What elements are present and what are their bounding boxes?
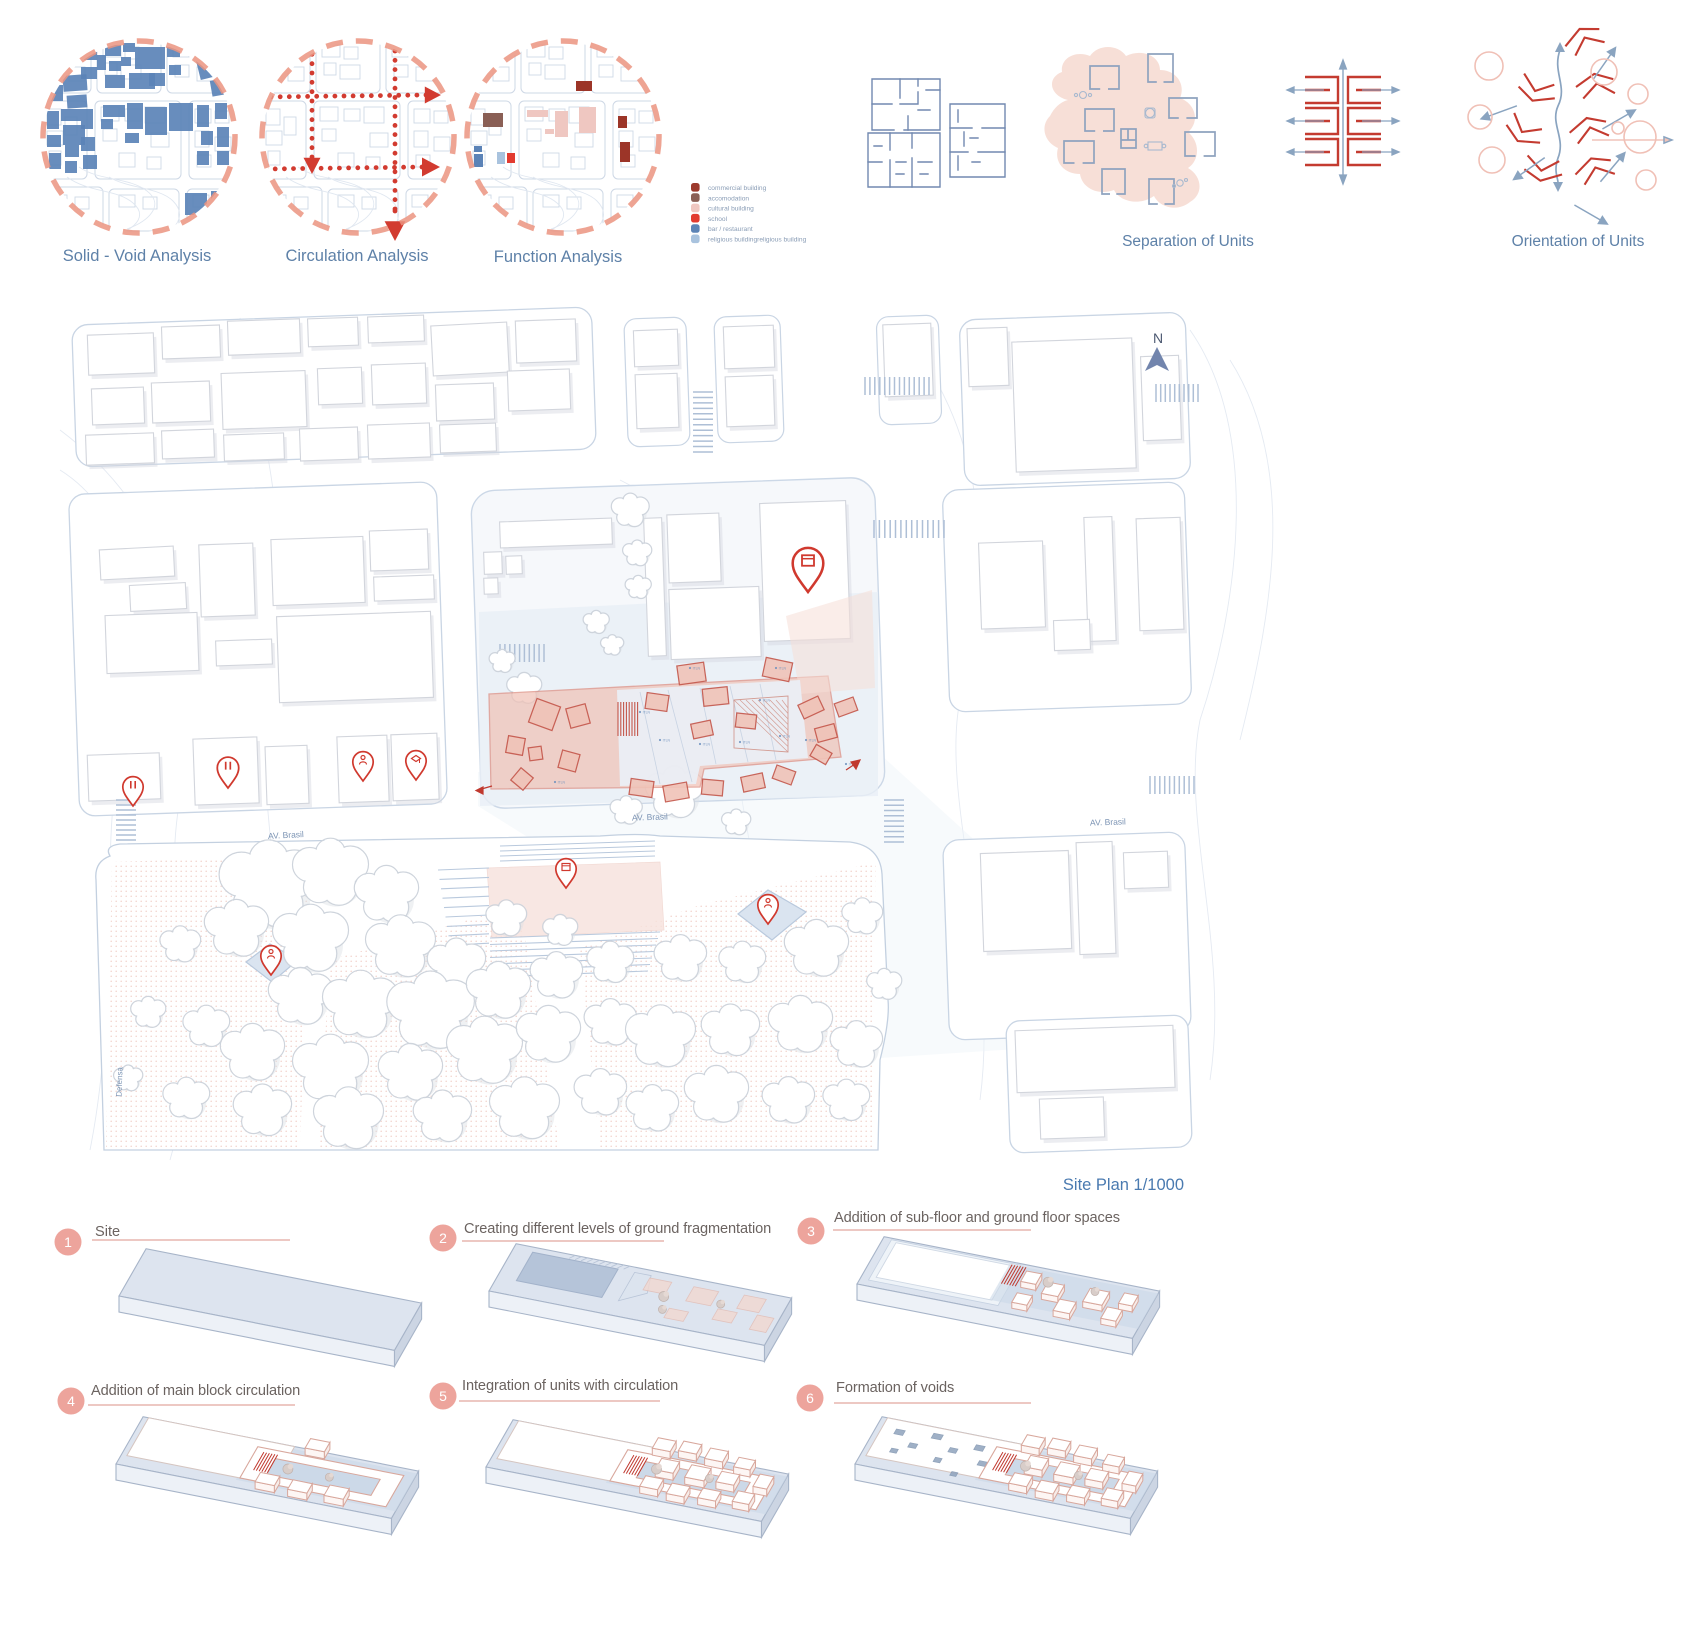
svg-text:AV. Brasil: AV. Brasil [632,811,668,822]
svg-text:ITLN: ITLN [663,738,671,742]
svg-text:Integration of units with circ: Integration of units with circulation [462,1378,678,1394]
svg-text:5: 5 [439,1388,447,1404]
svg-text:cultural building: cultural building [708,206,754,213]
svg-text:Site Plan 1/1000: Site Plan 1/1000 [1063,1176,1184,1194]
svg-text:religious buildingreligious bu: religious buildingreligious building [708,237,807,244]
svg-text:Function Analysis: Function Analysis [494,248,622,266]
svg-text:commercial building: commercial building [708,185,767,192]
svg-text:ITLN: ITLN [743,740,751,744]
svg-text:1: 1 [64,1234,72,1250]
svg-text:Creating different levels of: Creating different levels of ground frag… [464,1221,771,1237]
svg-text:Formation of voids: Formation of voids [836,1380,954,1396]
svg-text:ITLN: ITLN [693,666,701,670]
svg-text:school: school [708,216,728,223]
svg-text:2: 2 [439,1230,447,1246]
svg-text:Solid - Void Analysis: Solid - Void Analysis [63,247,212,265]
svg-text:Defensa: Defensa [114,1066,124,1097]
svg-text:accomodation: accomodation [708,195,749,202]
svg-text:bar / restaurant: bar / restaurant [708,226,753,233]
svg-text:AV. Brasil: AV. Brasil [268,829,304,841]
svg-text:ITLN: ITLN [703,742,711,746]
svg-text:Addition of sub-floor and grou: Addition of sub-floor and ground floor s… [834,1210,1120,1226]
svg-text:4: 4 [67,1393,75,1409]
svg-text:ITLN: ITLN [783,734,791,738]
svg-text:AV. Brasil: AV. Brasil [1090,816,1126,827]
svg-text:Orientation of Units: Orientation of Units [1512,233,1645,250]
svg-text:ITLN: ITLN [763,698,771,702]
svg-text:Site: Site [95,1224,120,1240]
svg-text:ITLN: ITLN [643,710,651,714]
svg-text:Addition of main block circul: Addition of main block circulation [91,1383,300,1399]
svg-text:ITLN: ITLN [779,666,787,670]
svg-text:ITLN: ITLN [558,780,566,784]
svg-text:3: 3 [807,1223,815,1239]
svg-text:Separation of Units: Separation of Units [1122,233,1254,250]
svg-text:6: 6 [806,1390,814,1406]
svg-text:N: N [1153,330,1163,346]
svg-text:ITLN: ITLN [809,738,817,742]
svg-text:Circulation Analysis: Circulation Analysis [285,247,428,265]
